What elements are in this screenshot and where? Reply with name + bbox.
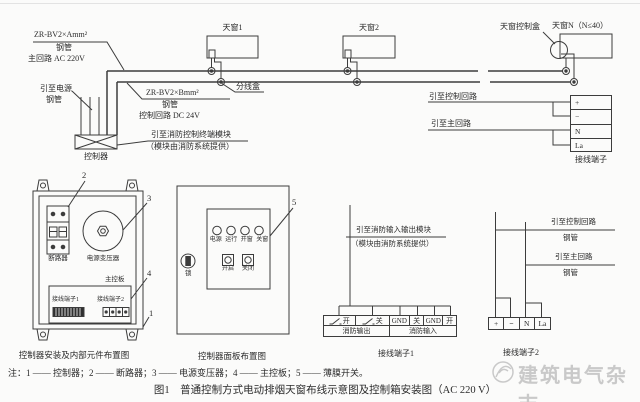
skylight-n-symbol (543, 32, 612, 86)
main-board-rect (49, 286, 131, 323)
terminal2-caption: 接线端子2 (494, 348, 548, 357)
terminal1-cell-input-close: 关 (410, 316, 425, 325)
ref-4: 4 (147, 269, 151, 279)
ref-5: 5 (292, 198, 296, 208)
power-lead-leader (72, 91, 92, 110)
watermark-logo-icon (493, 362, 513, 382)
fire-input-group-label: 消防输入 (390, 326, 456, 336)
terminal2-cell-n: N (520, 318, 535, 329)
terminal2-cell-plus: + (489, 318, 504, 329)
wiring-diagram-page: ZR-BV2×Amm² 钢管 主回路 AC 220V 引至电源 钢管 控制器 Z… (0, 0, 640, 402)
junction-box-label: 分线盒 (236, 82, 260, 91)
transformer-symbol (83, 211, 123, 251)
terminal1-cell-gnd2: GND (424, 316, 443, 325)
ctrl-box-leader (543, 32, 555, 44)
ref5-leader (270, 208, 293, 236)
close-button-label: 关闭 (240, 266, 256, 273)
ctrl-circuit-spec-label: ZR-BV2×Bmm² (146, 88, 199, 97)
terminal-cell-minus: − (571, 110, 611, 124)
indicator-label-open: 开窗 (239, 237, 255, 244)
terminal1-cell-gnd1: GND (390, 316, 410, 325)
terminal2-cells-row: + − N La (488, 317, 551, 330)
t2-to-control-label: 引至控制回路 (551, 218, 596, 227)
main-circuit-label: 主回路 AC 220V (28, 54, 85, 63)
wiring-diagram-svg (0, 0, 640, 402)
power-lead-label: 引至电源 (40, 84, 72, 93)
controller-caption: 控制器 (75, 152, 117, 161)
ctrl-circuit-label: 控制回路 DC 24V (139, 111, 200, 120)
indicator-labels-row: 电源 运行 开窗 关窗 (208, 237, 270, 244)
terminal1-cell-label: 关 (376, 316, 383, 326)
board-terminal2-label: 接线端子2 (97, 297, 124, 304)
fire-output-group-label: 消防输出 (324, 326, 390, 336)
fire-io-module-label: 引至消防输入输出模块 (356, 226, 431, 235)
indicator-label-power: 电源 (208, 237, 224, 244)
t2-main-conduit-label: 钢管 (563, 269, 578, 278)
terminal1-cell-label: 开 (343, 316, 350, 326)
fire-module-note-label: （模块由消防系统提供） (146, 142, 234, 151)
indicator-label-run: 运行 (224, 237, 240, 244)
watermark-text: 建筑电气杂志 (518, 359, 640, 402)
board-terminal1-bar (53, 308, 84, 317)
ctrl-conduit-label: 钢管 (162, 100, 178, 109)
lock-label: 锁 (185, 270, 192, 277)
t2-control-conduit-label: 钢管 (563, 234, 578, 243)
ref-leaders (68, 181, 149, 327)
terminal1-wires (339, 205, 451, 315)
skylight1-label: 天窗1 (207, 23, 258, 32)
transformer-label: 电源变压器 (83, 255, 123, 262)
terminal-cell-plus: + (571, 96, 611, 110)
ref-1: 1 (149, 309, 153, 319)
controller-detail-caption: 控制器安装及内部元件布置图 (18, 351, 130, 361)
terminal1-cell-input-open: 开 (443, 316, 456, 325)
terminal1-cell-label: GND (392, 317, 407, 325)
board-terminal1-label: 接线端子1 (52, 297, 79, 304)
board-terminal2-bar (103, 308, 129, 317)
fire-io-module-note: （模块由消防系统提供） (351, 240, 434, 249)
power-conduit-label: 钢管 (46, 95, 62, 104)
terminal1-cell-label: 开 (446, 316, 453, 326)
open-button-shape (223, 255, 234, 266)
terminal1-cell-output-open: 开 (324, 316, 356, 325)
figure-notes: 注：1 —— 控制器；2 —— 断路器；3 —— 电源变压器；4 —— 主控板；… (8, 368, 368, 378)
indicator-close (255, 226, 264, 235)
skylight-2-symbol (343, 36, 395, 86)
skylight2-label: 天窗2 (343, 23, 395, 32)
terminal1-cell-label: GND (426, 317, 441, 325)
indicator-run (227, 226, 236, 235)
panel-detail (177, 186, 293, 334)
terminal1-cell-output-close: 关 (356, 316, 390, 325)
right-terminal-block: + − N La (570, 95, 612, 152)
to-control-wire (428, 102, 570, 116)
close-button-shape (243, 255, 254, 266)
t2-to-main-label: 引至主回路 (555, 253, 593, 262)
right-terminal-caption: 接线端子 (570, 155, 612, 164)
skylight-n-label: 天窗N（N≤40） (552, 21, 608, 30)
breaker-label: 断路器 (45, 255, 71, 262)
open-button-label: 开启 (220, 266, 236, 273)
terminal2-cell-la: La (535, 318, 550, 329)
to-main-circuit-label: 引至主回路 (431, 119, 471, 128)
ref-3: 3 (147, 194, 151, 204)
indicator-power (213, 226, 222, 235)
terminal1-caption: 接线端子1 (366, 349, 426, 358)
skylight-ctrl-box-label: 天窗控制盒 (500, 22, 540, 31)
ref-2: 2 (82, 171, 86, 181)
terminal2-wires (496, 212, 616, 317)
terminal-cell-n: N (571, 125, 611, 139)
panel-detail-caption: 控制器面板布置图 (190, 352, 274, 362)
circuit-breaker-symbol (47, 206, 69, 254)
contact-switch-icon (362, 317, 375, 325)
terminal-cell-la: La (571, 139, 611, 153)
terminal1-cell-label: 关 (413, 316, 420, 326)
indicator-open (241, 226, 250, 235)
main-board-label: 主控板 (105, 276, 125, 283)
terminal2-cell-minus: − (504, 318, 519, 329)
terminal1-groups-row: 消防输出 消防输入 (323, 325, 457, 337)
main-conduit-label: 钢管 (56, 43, 72, 52)
main-circuit-spec-label: ZR-BV2×Amm² (34, 30, 87, 39)
contact-switch-icon (329, 317, 342, 325)
terminal1-comb (339, 306, 451, 315)
skylight-control-box-circle (551, 42, 568, 59)
to-main-wire (428, 130, 570, 145)
indicator-label-close: 关窗 (255, 237, 271, 244)
fire-module-lead-label: 引至消防控制终端模块 (151, 130, 231, 139)
to-control-circuit-label: 引至控制回路 (429, 92, 477, 101)
